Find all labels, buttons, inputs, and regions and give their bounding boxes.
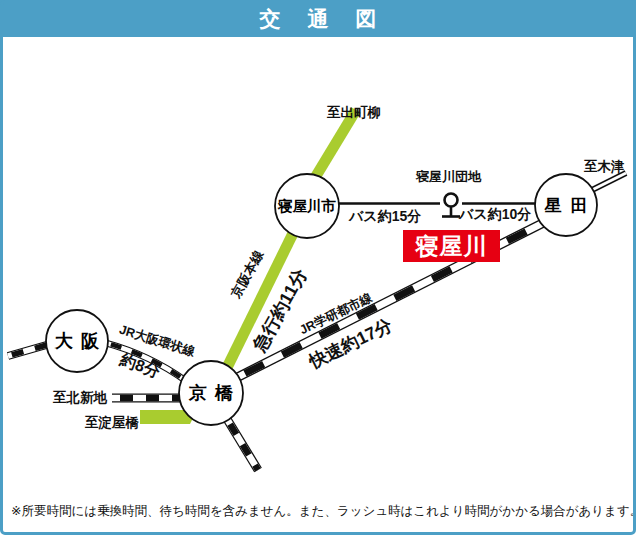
page-title: 交通図: [233, 5, 404, 33]
bus-stop-label: 寝屋川団地: [416, 170, 481, 183]
keihan-line-demachiyanagi-stub: [313, 110, 356, 181]
station-label-kyobashi: 京橋: [181, 384, 241, 402]
bus-stop-icon: [442, 194, 460, 217]
rail-line-kizu-stub: [590, 173, 626, 191]
station-label-neyagawashi: 寝屋川市: [278, 199, 336, 214]
footnote-text: ※所要時間には乗換時間、待ち時間を含みません。また、ラッシュ時はこれより時間がか…: [11, 503, 636, 520]
bus-east-duration: バス約10分: [459, 207, 531, 221]
direction-yodoyabashi: 至淀屋橋: [85, 416, 139, 430]
access-map-page: 交通図: [0, 0, 636, 535]
station-label-osaka: 大阪: [47, 332, 107, 350]
bus-west-duration: バス約15分: [349, 209, 421, 223]
direction-kitashinchi: 至北新地: [53, 391, 107, 405]
station-label-hoshida: 星田: [536, 197, 597, 214]
rail-line-west-stub: [8, 344, 50, 356]
direction-demachiyanagi: 至出町柳: [327, 106, 381, 120]
route-map-canvas: [0, 0, 636, 535]
rail-line-southeast-stub: [227, 419, 258, 470]
header-bar: 交通図: [0, 0, 636, 37]
highlight-neyagawa-badge: 寝屋川: [403, 230, 500, 262]
direction-kizu: 至木津: [584, 160, 625, 174]
highlight-neyagawa-label: 寝屋川: [416, 231, 488, 262]
